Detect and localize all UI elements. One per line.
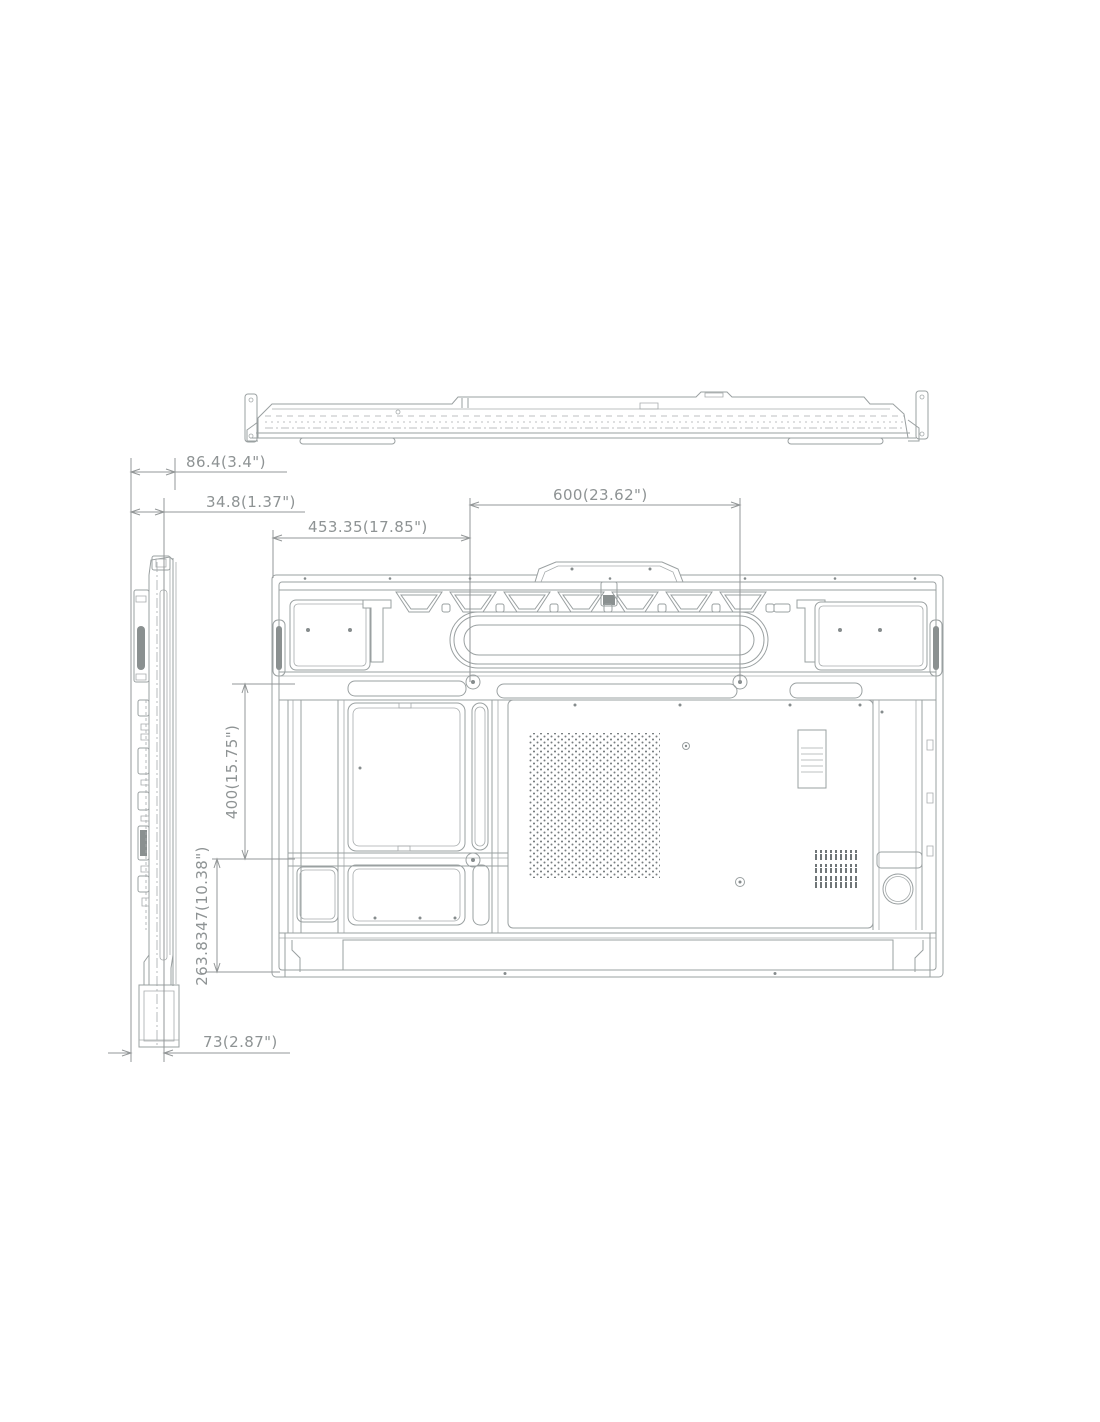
top-view-left-foot (300, 438, 395, 444)
display-dimension-drawing: 86.4(3.4") 34.8(1.37") 453.35(17.85") 60… (0, 0, 1100, 1422)
dimension-vesa-left-offset: 453.35(17.85") (273, 518, 470, 578)
rear-view (272, 562, 943, 977)
band-left-panel (290, 600, 370, 670)
dimension-depth-back-label: 34.8(1.37") (206, 493, 296, 511)
left-door-panel (348, 703, 465, 851)
top-view-right-foot (788, 438, 883, 444)
side-view-foot (139, 985, 179, 1047)
speaker-grille (813, 850, 860, 888)
technical-drawing-page: 86.4(3.4") 34.8(1.37") 453.35(17.85") 60… (0, 0, 1100, 1422)
dimension-depth-total: 86.4(3.4") (131, 453, 287, 475)
dimension-depth-bottom-label: 73(2.87") (203, 1033, 278, 1051)
side-view (134, 556, 179, 1048)
side-view-connectors (138, 700, 149, 906)
dimension-vesa-left-offset-label: 453.35(17.85") (308, 518, 428, 536)
top-view (245, 391, 928, 444)
vent-grid (528, 733, 660, 878)
dimension-bottom-offset: 263.8347(10.38") (193, 846, 280, 986)
dimension-bottom-offset-label: 263.8347(10.38") (193, 846, 211, 986)
dimension-vesa-height-label: 400(15.75") (223, 725, 241, 820)
handle-recess-capsule (450, 612, 768, 668)
dimension-depth-total-label: 86.4(3.4") (186, 453, 266, 471)
dimension-depth-bottom: 73(2.87") (108, 1033, 290, 1056)
dimension-vesa-width-label: 600(23.62") (553, 486, 648, 504)
dimension-depth-back: 34.8(1.37") (131, 493, 305, 515)
band-right-panel (815, 602, 927, 670)
